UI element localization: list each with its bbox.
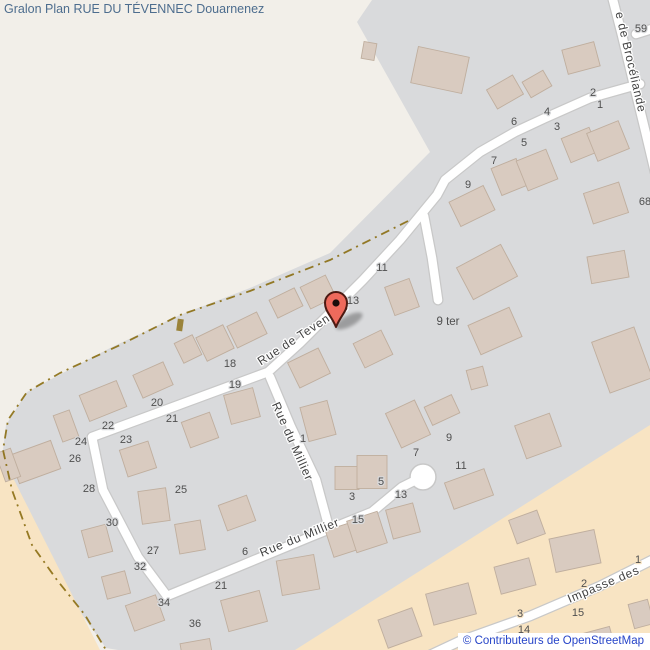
building [276, 554, 320, 595]
house-number: 3 [517, 608, 523, 620]
house-number: 20 [151, 397, 163, 409]
house-number: 7 [413, 447, 419, 459]
house-number: 68 [639, 196, 650, 208]
label-9ter: 9 ter [436, 316, 459, 328]
house-number: 7 [491, 155, 497, 167]
house-number: 13 [395, 489, 407, 501]
house-number: 24 [75, 436, 87, 448]
map-canvas[interactable]: 5921436579681113181920212223242628253027… [0, 0, 650, 650]
house-number: 25 [175, 484, 187, 496]
house-number: 18 [224, 358, 236, 370]
house-number: 22 [102, 420, 114, 432]
page-title: Gralon Plan RUE DU TÉVENNEC Douarnenez [4, 2, 264, 16]
house-number: 11 [376, 262, 387, 274]
house-number: 5 [378, 476, 384, 488]
house-number: 23 [120, 434, 132, 446]
house-number: 36 [189, 618, 201, 630]
house-number: 28 [83, 483, 95, 495]
building [361, 42, 377, 61]
house-number: 34 [158, 597, 170, 609]
house-number: 19 [229, 379, 241, 391]
building [175, 520, 206, 554]
house-number: 4 [544, 106, 550, 118]
house-number: 3 [554, 121, 560, 133]
house-number: 32 [134, 561, 146, 573]
house-number: 30 [106, 517, 118, 529]
house-number: 2 [590, 87, 596, 99]
house-number: 6 [511, 116, 517, 128]
house-number: 11 [455, 460, 466, 472]
building [138, 488, 170, 525]
map-svg: 5921436579681113181920212223242628253027… [0, 0, 650, 650]
house-number: 21 [166, 413, 178, 425]
house-number: 13 [347, 295, 359, 307]
house-number: 5 [521, 137, 527, 149]
house-number: 1 [597, 99, 603, 111]
house-number: 26 [69, 453, 81, 465]
house-number: 15 [572, 607, 584, 619]
house-number: 6 [242, 546, 248, 558]
house-number: 21 [215, 580, 227, 592]
house-number: 9 [446, 432, 452, 444]
house-number: 59 [635, 23, 647, 35]
building [335, 467, 359, 490]
house-number: 27 [147, 545, 159, 557]
osm-attribution-link[interactable]: © Contributeurs de OpenStreetMap [458, 633, 650, 650]
house-number: 3 [349, 491, 355, 503]
house-number: 9 [465, 179, 471, 191]
house-number: 15 [352, 514, 364, 526]
